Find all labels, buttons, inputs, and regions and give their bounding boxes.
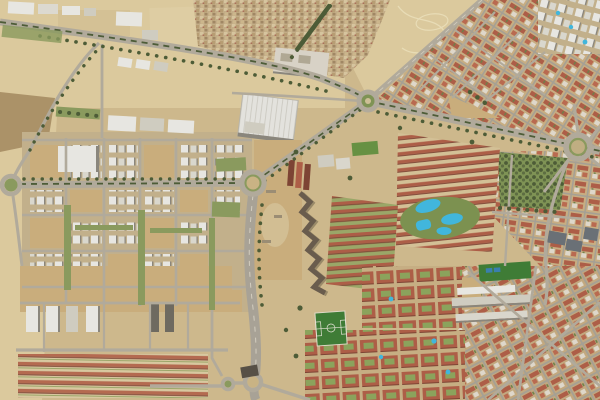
central-roundabout: [242, 172, 264, 194]
west-roundabout: [2, 176, 20, 194]
aerial-imagery: [0, 0, 600, 400]
satellite-map-viewport[interactable]: [0, 0, 600, 400]
east-roundabout: [566, 135, 590, 159]
construction-lots-south: [20, 266, 232, 312]
football-pitch: [315, 311, 347, 346]
north-roundabout: [359, 92, 377, 110]
exhibition-hall: [238, 94, 299, 144]
